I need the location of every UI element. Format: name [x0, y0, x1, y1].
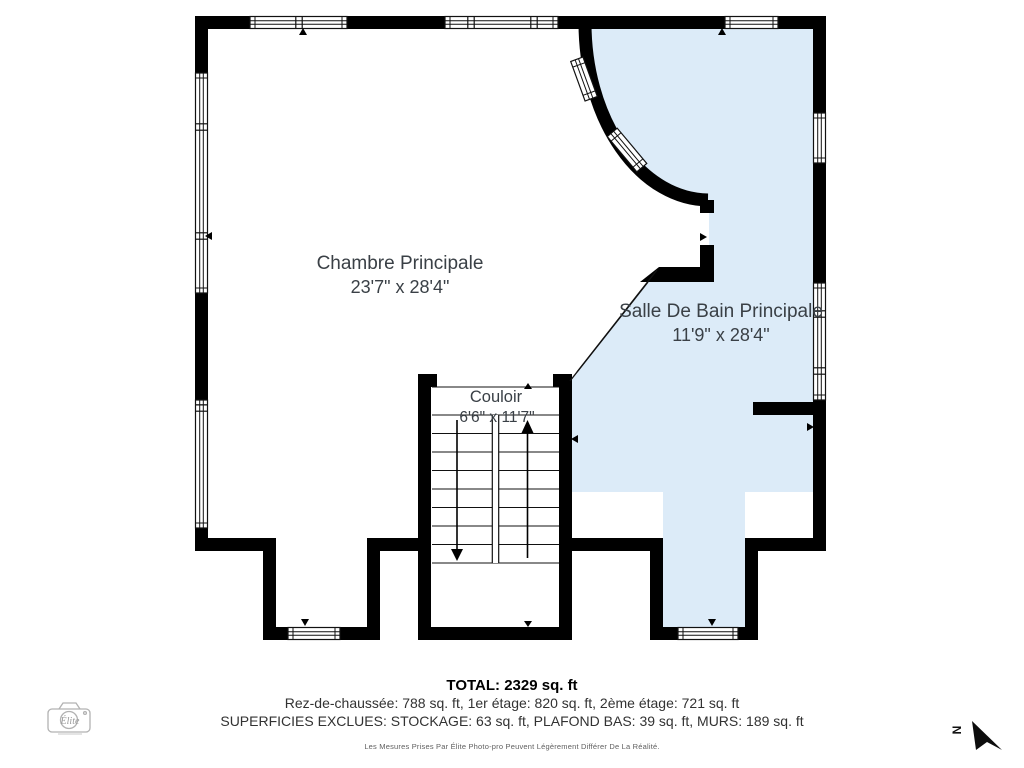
north-compass: N [946, 700, 1010, 763]
label-chambre-name: Chambre Principale [317, 253, 484, 274]
window [196, 400, 208, 528]
wall-stair-cap-left [418, 374, 437, 387]
floorplan-page: { "plan": { "rooms": [ { "name": "Chambr… [0, 0, 1024, 768]
wall-bath-stub-right [753, 402, 813, 415]
wall-protrusion-right [367, 551, 380, 640]
wall-right [813, 16, 826, 548]
stair-down-arrow [451, 420, 463, 561]
wall-corridor-right [745, 538, 758, 640]
wall-stair-bottom [418, 627, 572, 640]
company-logo: Élite [42, 694, 98, 745]
label-bain-dims: 11'9" x 28'4" [672, 325, 769, 345]
wall-stair-right [559, 374, 572, 640]
wall-interior-tapered [640, 267, 714, 282]
total-area-text: TOTAL: 2329 sq. ft [0, 677, 1024, 695]
north-arrow-icon [972, 721, 1002, 750]
marker-right-bedroom [700, 233, 707, 241]
north-label: N [950, 726, 964, 735]
wall-bottom-left [195, 538, 273, 551]
logo-text: Élite [60, 715, 80, 727]
camera-top-icon [59, 703, 80, 709]
window [250, 17, 347, 29]
window [445, 17, 558, 29]
window [814, 113, 826, 163]
label-couloir-name: Couloir [470, 388, 523, 406]
camera-flash-icon [84, 712, 87, 715]
stair-divider [492, 415, 498, 563]
window [196, 73, 208, 293]
disclaimer-text: Les Mesures Prises Par Élite Photo-pro P… [0, 742, 1024, 751]
wall-bath-bottom-left [572, 538, 663, 551]
marker-couloir-up [524, 383, 532, 389]
floor-plan: Chambre Principale 23'7" x 28'4" Salle D… [0, 0, 1024, 660]
area-summary: TOTAL: 2329 sq. ft Rez-de-chaussée: 788 … [0, 677, 1024, 730]
excluded-area-text: SUPERFICIES EXCLUES: STOCKAGE: 63 sq. ft… [0, 713, 1024, 731]
wall-stair-cap-right [553, 374, 572, 387]
window [725, 17, 778, 29]
label-chambre-dims: 23'7" x 28'4" [351, 277, 450, 297]
window [288, 628, 340, 640]
floors-area-text: Rez-de-chaussée: 788 sq. ft, 1er étage: … [0, 695, 1024, 713]
wall-bath-bottom-right [745, 538, 826, 551]
label-bain-name: Salle De Bain Principale [619, 301, 823, 322]
wall-stair-left [418, 374, 431, 640]
wall-protrusion-left [263, 538, 276, 640]
label-couloir-dims: 6'6" x 11'7" [459, 409, 534, 426]
window [678, 628, 738, 640]
wall-corridor-left [650, 538, 663, 640]
marker-down-bedroom [301, 619, 309, 626]
marker-couloir-down [524, 621, 532, 627]
